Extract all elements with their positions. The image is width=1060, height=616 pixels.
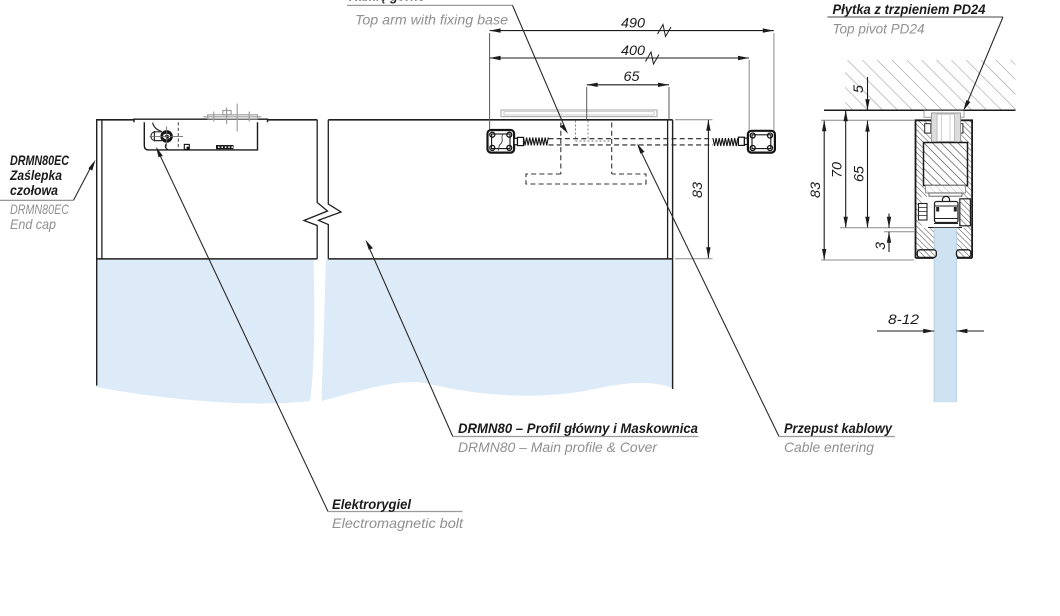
svg-text:Płytka z trzpieniem PD24: Płytka z trzpieniem PD24 — [833, 1, 986, 17]
svg-text:czołowa: czołowa — [10, 182, 58, 198]
svg-text:400: 400 — [621, 42, 645, 58]
svg-text:5: 5 — [850, 85, 866, 93]
svg-text:70: 70 — [829, 162, 845, 178]
svg-text:Zaślepka: Zaślepka — [9, 167, 62, 183]
svg-text:65: 65 — [851, 166, 867, 182]
svg-text:DRMN80 – Main profile & Cover: DRMN80 – Main profile & Cover — [458, 439, 658, 455]
svg-text:DRMN80EC: DRMN80EC — [10, 201, 70, 217]
svg-text:Cable entering: Cable entering — [784, 439, 874, 455]
svg-text:65: 65 — [624, 68, 640, 84]
svg-text:Top pivot PD24: Top pivot PD24 — [833, 20, 925, 36]
svg-text:83: 83 — [689, 182, 705, 198]
svg-text:Przepust kablowy: Przepust kablowy — [784, 420, 893, 436]
svg-text:Ramię górne: Ramię górne — [349, 0, 425, 4]
svg-text:DRMN80EC: DRMN80EC — [10, 152, 70, 168]
svg-text:3: 3 — [872, 242, 888, 250]
svg-text:End cap: End cap — [10, 216, 56, 232]
svg-text:Electromagnetic bolt: Electromagnetic bolt — [332, 515, 464, 531]
svg-text:DRMN80 – Profil główny i Masko: DRMN80 – Profil główny i Maskownica — [458, 420, 698, 436]
svg-text:83: 83 — [807, 182, 823, 198]
svg-text:Top arm with fixing base: Top arm with fixing base — [355, 12, 508, 28]
svg-text:8-12: 8-12 — [888, 311, 919, 327]
svg-text:Elektrorygiel: Elektrorygiel — [332, 496, 412, 512]
svg-text:490: 490 — [621, 15, 645, 31]
